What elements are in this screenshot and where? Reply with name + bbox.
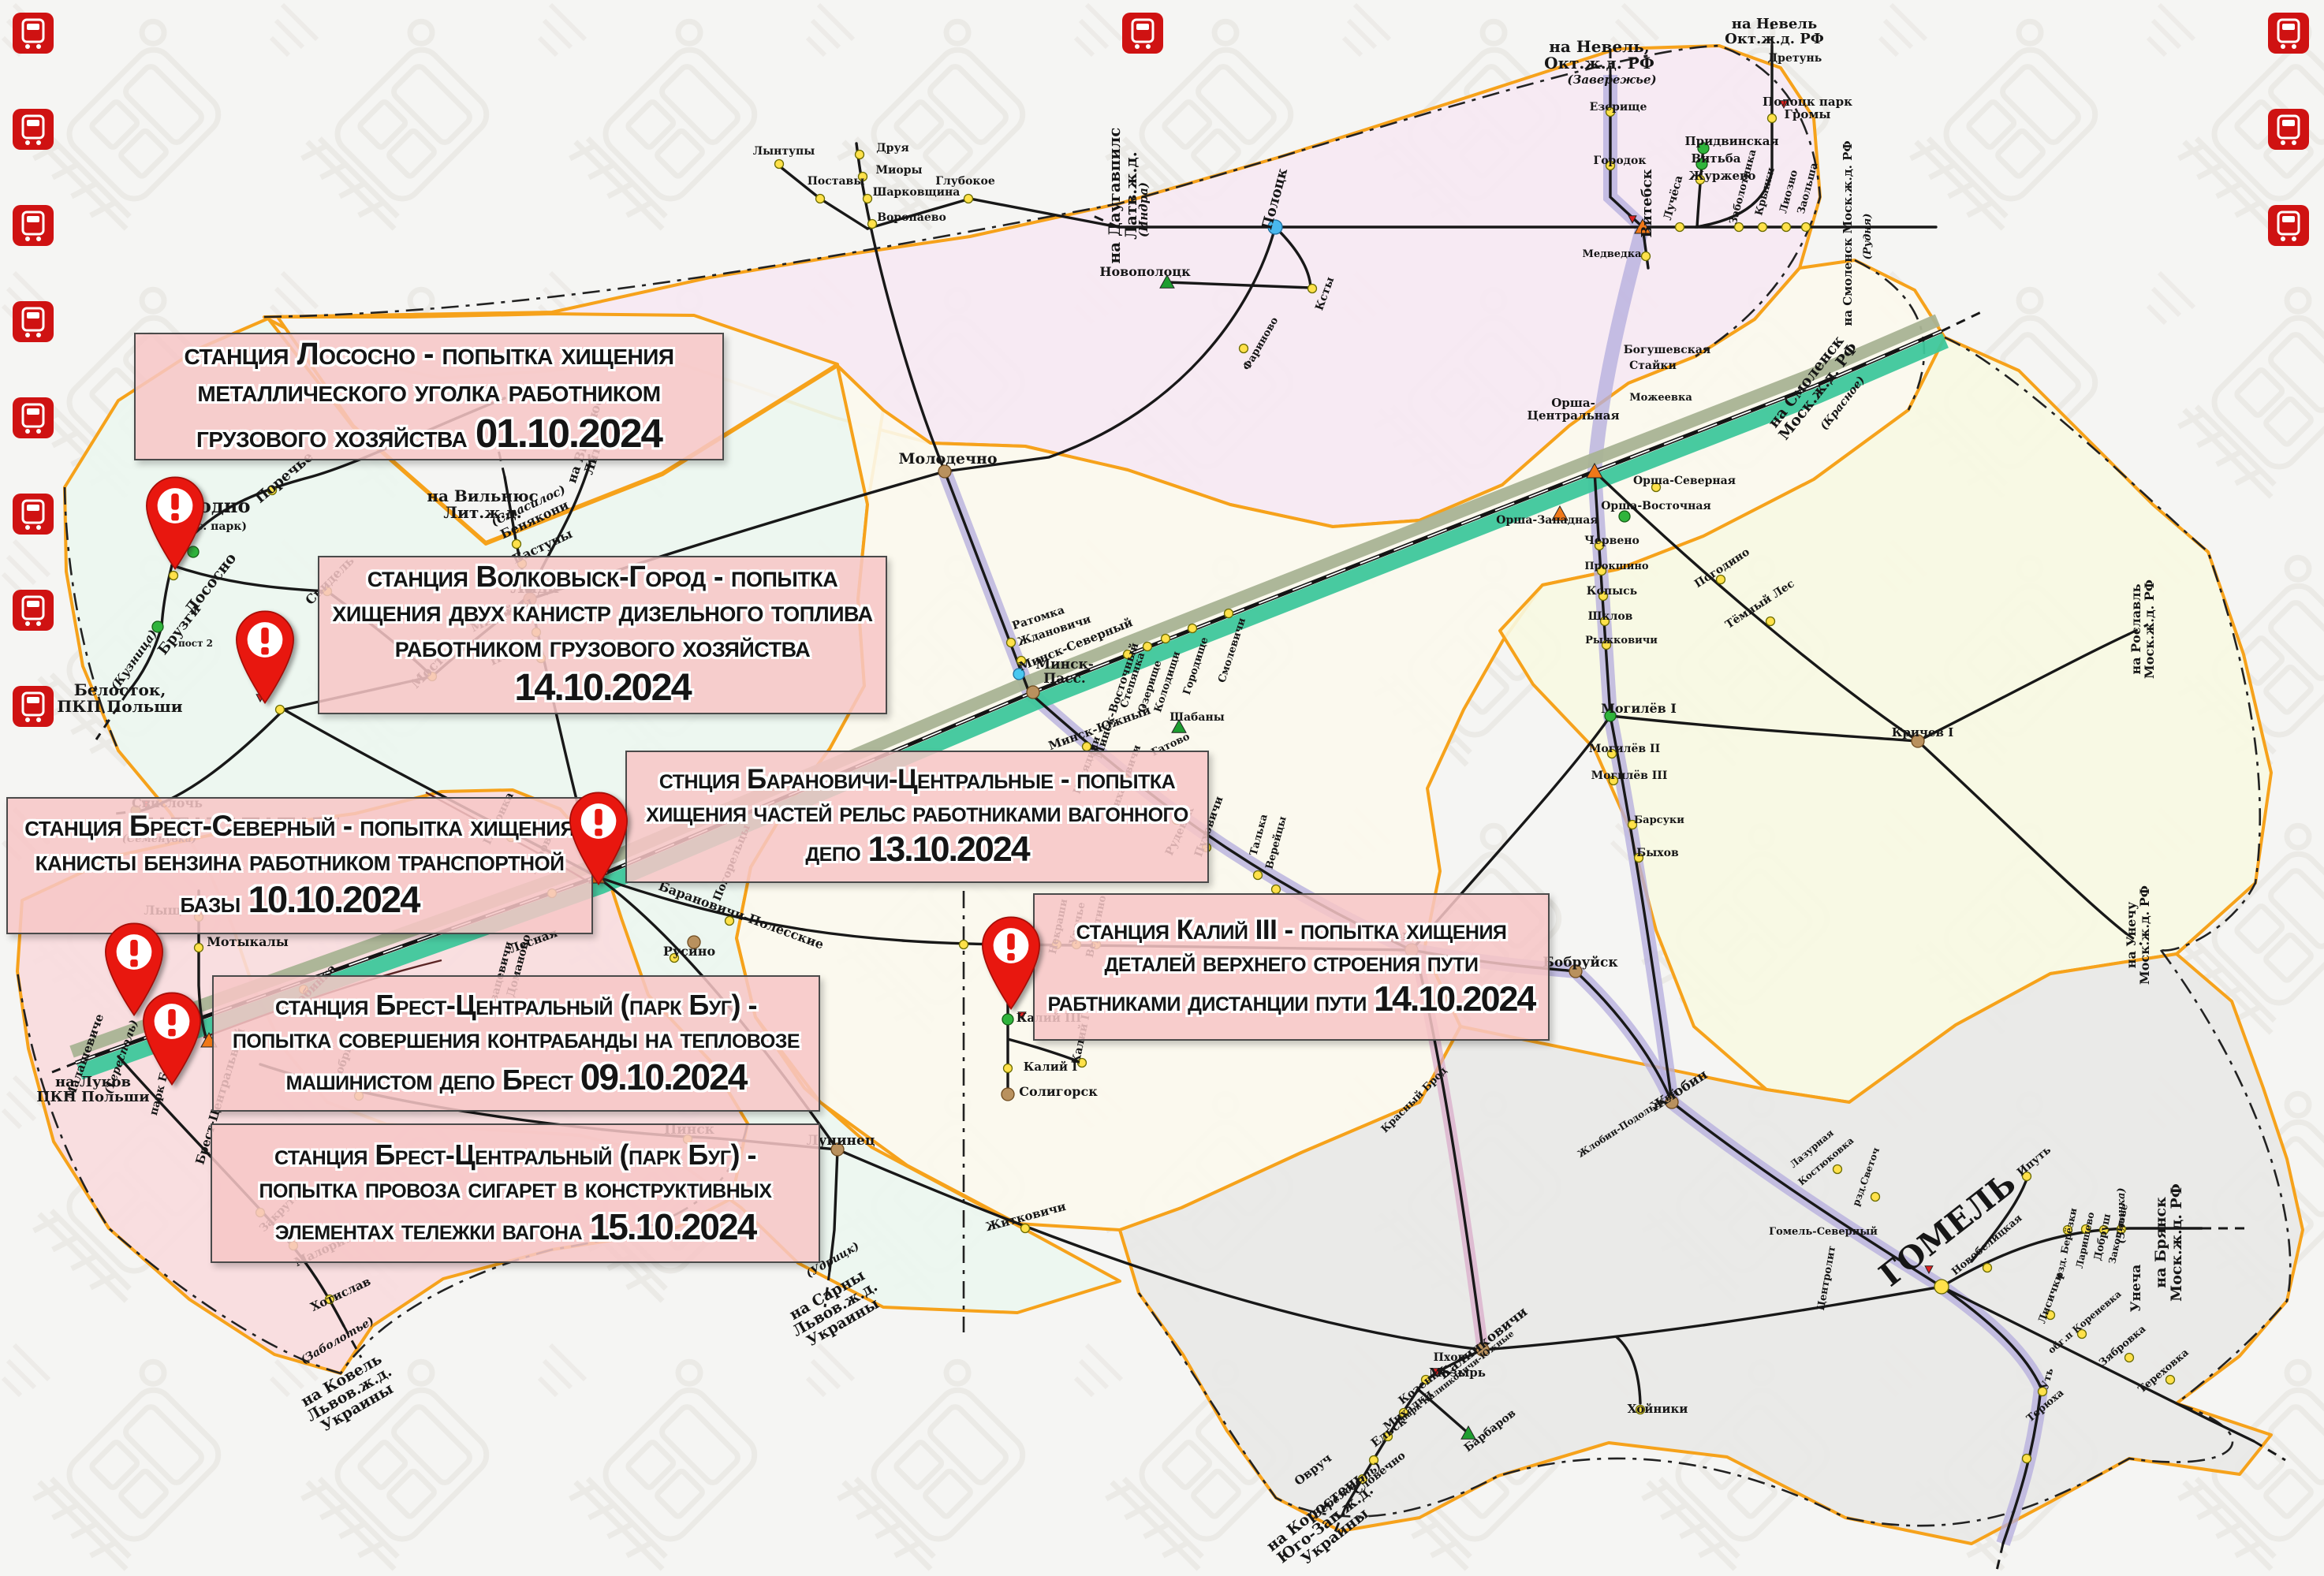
map-label: (пас. парк): [176, 520, 247, 533]
map-label: на БрянскМоск.ж.д. РФ: [2152, 1183, 2185, 1302]
map-label: Пхов: [1434, 1351, 1466, 1364]
map-label: на Невель,Окт.ж.д. РФ: [1544, 37, 1654, 73]
railway-logo-icon: [2268, 13, 2309, 54]
map-label: Придвинская: [1684, 134, 1778, 148]
station-dot: [1676, 223, 1684, 232]
railway-logo-icon: [13, 13, 54, 54]
station-dot: [1833, 1165, 1842, 1174]
map-label: Гомель-Северный: [1769, 1226, 1878, 1238]
map-label: Поставы: [808, 175, 865, 188]
incident-note-brest-bug-2: станция Брест-Центральный (парк Буг) - п…: [211, 1123, 820, 1263]
railway-logo-icon: [13, 686, 54, 727]
map-label: Унеча: [2128, 1265, 2144, 1313]
map-label: (Завережье): [1567, 73, 1656, 87]
map-label: Новополоцк: [1099, 264, 1191, 279]
railway-logo-icon: [1122, 13, 1163, 54]
map-label: Калий I: [1024, 1060, 1077, 1074]
incident-date: 10.10.2024: [248, 879, 419, 921]
station-dot: [775, 160, 784, 169]
incident-date: 13.10.2024: [867, 829, 1028, 869]
station-dot: [1004, 941, 1013, 949]
station-dot: [170, 572, 178, 580]
station-dot: [1983, 1264, 1992, 1272]
railway-logo-icon: [2268, 109, 2309, 150]
railway-logo-icon: [13, 301, 54, 342]
incident-text: станция Волковыск-Город - попытка хищени…: [332, 561, 872, 665]
incident-date: 14.10.2024: [1374, 979, 1535, 1019]
station-dot: [1768, 114, 1777, 123]
station-dot: [1934, 1280, 1949, 1294]
map-label: Хойники: [1628, 1402, 1688, 1416]
station-dot: [816, 195, 825, 203]
station-dot: [1240, 345, 1248, 353]
incident-date: 14.10.2024: [514, 666, 690, 709]
map-label: Гродно: [173, 494, 251, 517]
incident-note-baranovichi: стнция Барановичи-Центральные - попытка …: [625, 751, 1209, 883]
map-label: Шклов: [1588, 610, 1633, 623]
station-dot: [1225, 609, 1233, 618]
map-label: Воропаево: [877, 211, 946, 224]
map-label: Орша-Восточная: [1601, 500, 1711, 512]
map-label: (Индра): [1136, 182, 1151, 237]
incident-date: 01.10.2024: [476, 411, 662, 456]
incident-note-volkovysk: станция Волковыск-Город - попытка хищени…: [318, 556, 887, 714]
map-label: Лынтупы: [753, 145, 815, 158]
railway-logo-icon: [13, 494, 54, 535]
map-label: Витьба: [1691, 151, 1740, 166]
map-label: Городок: [1594, 155, 1647, 167]
map-label: Барсуки: [1634, 814, 1684, 826]
station-dot: [1004, 1064, 1013, 1073]
station-dot: [1002, 1014, 1013, 1025]
map-label: Могилёв III: [1591, 769, 1668, 782]
map-label: Быхов: [1636, 847, 1679, 859]
station-dot: [864, 195, 872, 203]
station-dot: [1782, 223, 1791, 232]
map-label: Миоры: [875, 164, 922, 177]
map-label: Кричев I: [1892, 725, 1953, 740]
map-label: Богушевская: [1624, 344, 1711, 356]
station-dot: [1802, 223, 1811, 232]
station-dot: [2023, 1455, 2031, 1463]
railway-logo-icon: [13, 590, 54, 631]
station-dot: [2125, 1354, 2134, 1362]
station-dot: [1027, 686, 1039, 699]
map-label: на РославльМоск.ж.д. РФ: [2128, 579, 2157, 679]
station-dot: [1871, 1193, 1880, 1202]
station-dot: [964, 195, 973, 203]
station-dot: [856, 151, 864, 159]
station-dot: [513, 540, 521, 549]
map-label: Могилёв II: [1589, 743, 1660, 755]
station-dot: [1642, 252, 1651, 261]
map-label: Друя: [876, 142, 909, 155]
map-label: Орша-Западная: [1496, 514, 1598, 527]
railway-logo-icon: [13, 205, 54, 246]
station-dot: [1766, 617, 1775, 626]
incident-date: 09.10.2024: [580, 1056, 747, 1097]
station-dot: [2166, 1376, 2175, 1384]
railway-logo-icon: [13, 109, 54, 150]
station-dot: [1162, 635, 1170, 643]
map-label: на Смоленск Моск.ж.д. РФ: [1841, 140, 1855, 326]
map-label: Рыжковичи: [1585, 635, 1658, 646]
map-label: Копысь: [1587, 585, 1637, 598]
map-label: Солигорск: [1019, 1084, 1098, 1099]
station-dot: [1007, 639, 1016, 647]
incident-note-brest-bug-1: станция Брест-Центральный (парк Буг) - п…: [212, 975, 820, 1112]
map-label: Могилёв I: [1601, 701, 1677, 716]
map-label: (Рудня): [1862, 214, 1874, 260]
station-dot: [1254, 871, 1263, 880]
station-dot: [1272, 885, 1281, 894]
map-label: Шарковщина: [873, 186, 961, 199]
map-label: Стайки: [1629, 359, 1677, 372]
railway-logo-icon: [13, 397, 54, 438]
incident-note-lososno: станция Лососно - попытка хищения металл…: [134, 333, 724, 460]
station-dot: [1002, 1088, 1014, 1101]
map-label: Орша-Северная: [1633, 475, 1736, 487]
map-label: Русино: [663, 944, 716, 959]
incident-note-brest-severny: станция Брест-Северный - попытка хищения…: [6, 797, 593, 934]
map-label: Глубокое: [935, 175, 995, 188]
railway-logo-icon: [2268, 205, 2309, 246]
map-label: Червено: [1584, 535, 1639, 547]
station-dot: [1759, 223, 1767, 232]
station-dot: [960, 941, 968, 949]
map-label: Шабаны: [1169, 711, 1225, 724]
station-dot: [1188, 624, 1197, 633]
map-label: Медведка: [1582, 248, 1642, 260]
station-dot: [868, 220, 877, 229]
map-label: Молодечно: [898, 450, 997, 468]
station-dot: [188, 546, 199, 557]
railway-map-canvas: на Невель,Окт.ж.д. РФ(Завережье)на Невел…: [0, 0, 2324, 1576]
station-dot: [276, 706, 285, 714]
station-dot: [1619, 511, 1630, 522]
map-label: Прокшино: [1584, 561, 1649, 572]
map-label: Мотыкалы: [207, 934, 289, 949]
station-dot: [195, 944, 203, 952]
map-label: Витебск: [1639, 169, 1655, 237]
station-dot: [1021, 1224, 1030, 1233]
map-label: пост 2: [178, 638, 213, 649]
map-label: Можеевка: [1629, 392, 1692, 404]
station-dot: [1308, 285, 1317, 293]
station-dot: [1143, 643, 1152, 651]
incident-date: 15.10.2024: [590, 1206, 756, 1247]
map-label: Дретунь: [1768, 52, 1822, 65]
map-label: на НевельОкт.ж.д. РФ: [1725, 16, 1824, 47]
map-label: Езерище: [1590, 101, 1647, 114]
incident-note-kaliy: станция Калий III - попытка хищения дета…: [1033, 893, 1550, 1041]
map-label: Бобруйск: [1542, 955, 1618, 971]
